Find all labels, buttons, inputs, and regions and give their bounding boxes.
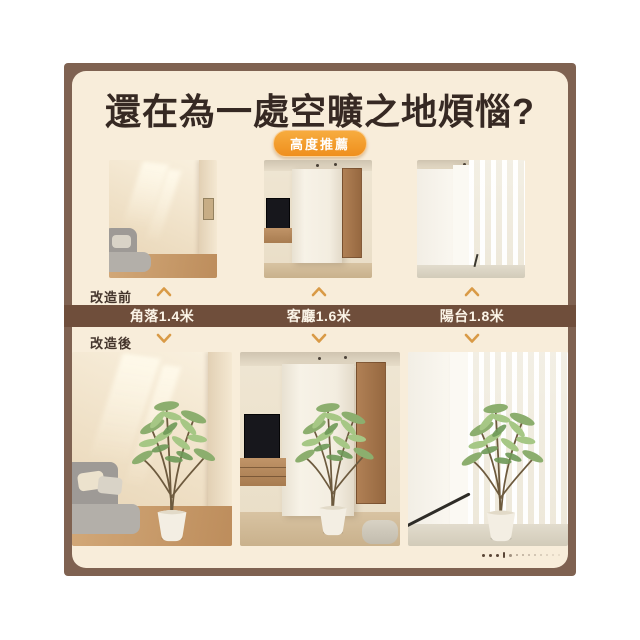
tv-decor: [266, 198, 290, 230]
ceiling-lamp-decor: [316, 164, 319, 167]
dot: [546, 554, 548, 556]
dot: [496, 554, 499, 557]
artificial-plant-image: [282, 374, 384, 536]
page-title: 還在為一處空曠之地煩惱?: [64, 83, 576, 135]
up-arrow-icon: [311, 286, 327, 297]
curtain-decor: [469, 160, 525, 265]
dot-bar: [503, 552, 505, 558]
location-label-corner: 角落1.4米: [130, 305, 194, 327]
photo-before-living-room: [264, 160, 372, 278]
floor-decor: [264, 263, 372, 278]
dot: [552, 554, 554, 556]
floor-decor: [417, 265, 525, 278]
drawer-line-decor: [240, 467, 286, 468]
recommendation-badge: 高度推薦: [273, 130, 367, 157]
dot: [509, 554, 512, 557]
tv-decor: [244, 414, 280, 460]
poster-frame: 還在為一處空曠之地煩惱? 高度推薦 改造前: [64, 63, 576, 576]
wall-art-decor: [203, 198, 214, 220]
artificial-plant-image: [448, 374, 554, 542]
dot: [482, 554, 485, 557]
location-label-living-room: 客廳1.6米: [287, 305, 351, 327]
drawer-line-decor: [240, 476, 286, 477]
before-row-label: 改造前: [90, 287, 132, 306]
partition-wall-decor: [292, 169, 342, 263]
watermark-dots: [482, 552, 560, 558]
dot: [528, 554, 530, 556]
comparison-bar: 角落1.4米 客廳1.6米 陽台1.8米: [64, 305, 576, 327]
after-row-label: 改造後: [90, 333, 132, 352]
photo-after-corner: [72, 352, 232, 546]
ceiling-lamp-decor: [334, 163, 337, 166]
up-arrow-icon: [464, 286, 480, 297]
dot: [558, 554, 560, 556]
ceiling-lamp-decor: [344, 356, 347, 359]
up-arrow-icon: [156, 286, 172, 297]
dot: [516, 554, 518, 556]
location-label-balcony: 陽台1.8米: [440, 305, 504, 327]
cabinet-decor: [240, 458, 286, 486]
down-arrow-icon: [311, 333, 327, 344]
armchair-decor: [109, 252, 151, 272]
down-arrow-icon: [464, 333, 480, 344]
photo-before-corner: [109, 160, 217, 278]
wall-decor: [408, 352, 450, 546]
dot: [489, 554, 492, 557]
dot: [534, 554, 536, 556]
artificial-plant-image: [118, 370, 226, 542]
photo-after-balcony: [408, 352, 568, 546]
photo-after-living-room: [240, 352, 400, 546]
cabinet-decor: [264, 228, 292, 243]
ceiling-lamp-decor: [318, 357, 321, 360]
down-arrow-icon: [156, 333, 172, 344]
column-decor: [453, 165, 469, 267]
wall-decor: [417, 169, 453, 267]
pillow-decor: [112, 235, 131, 248]
dot: [522, 554, 524, 556]
dot: [540, 554, 542, 556]
wood-door-decor: [342, 168, 362, 258]
photo-before-balcony: [417, 160, 525, 278]
